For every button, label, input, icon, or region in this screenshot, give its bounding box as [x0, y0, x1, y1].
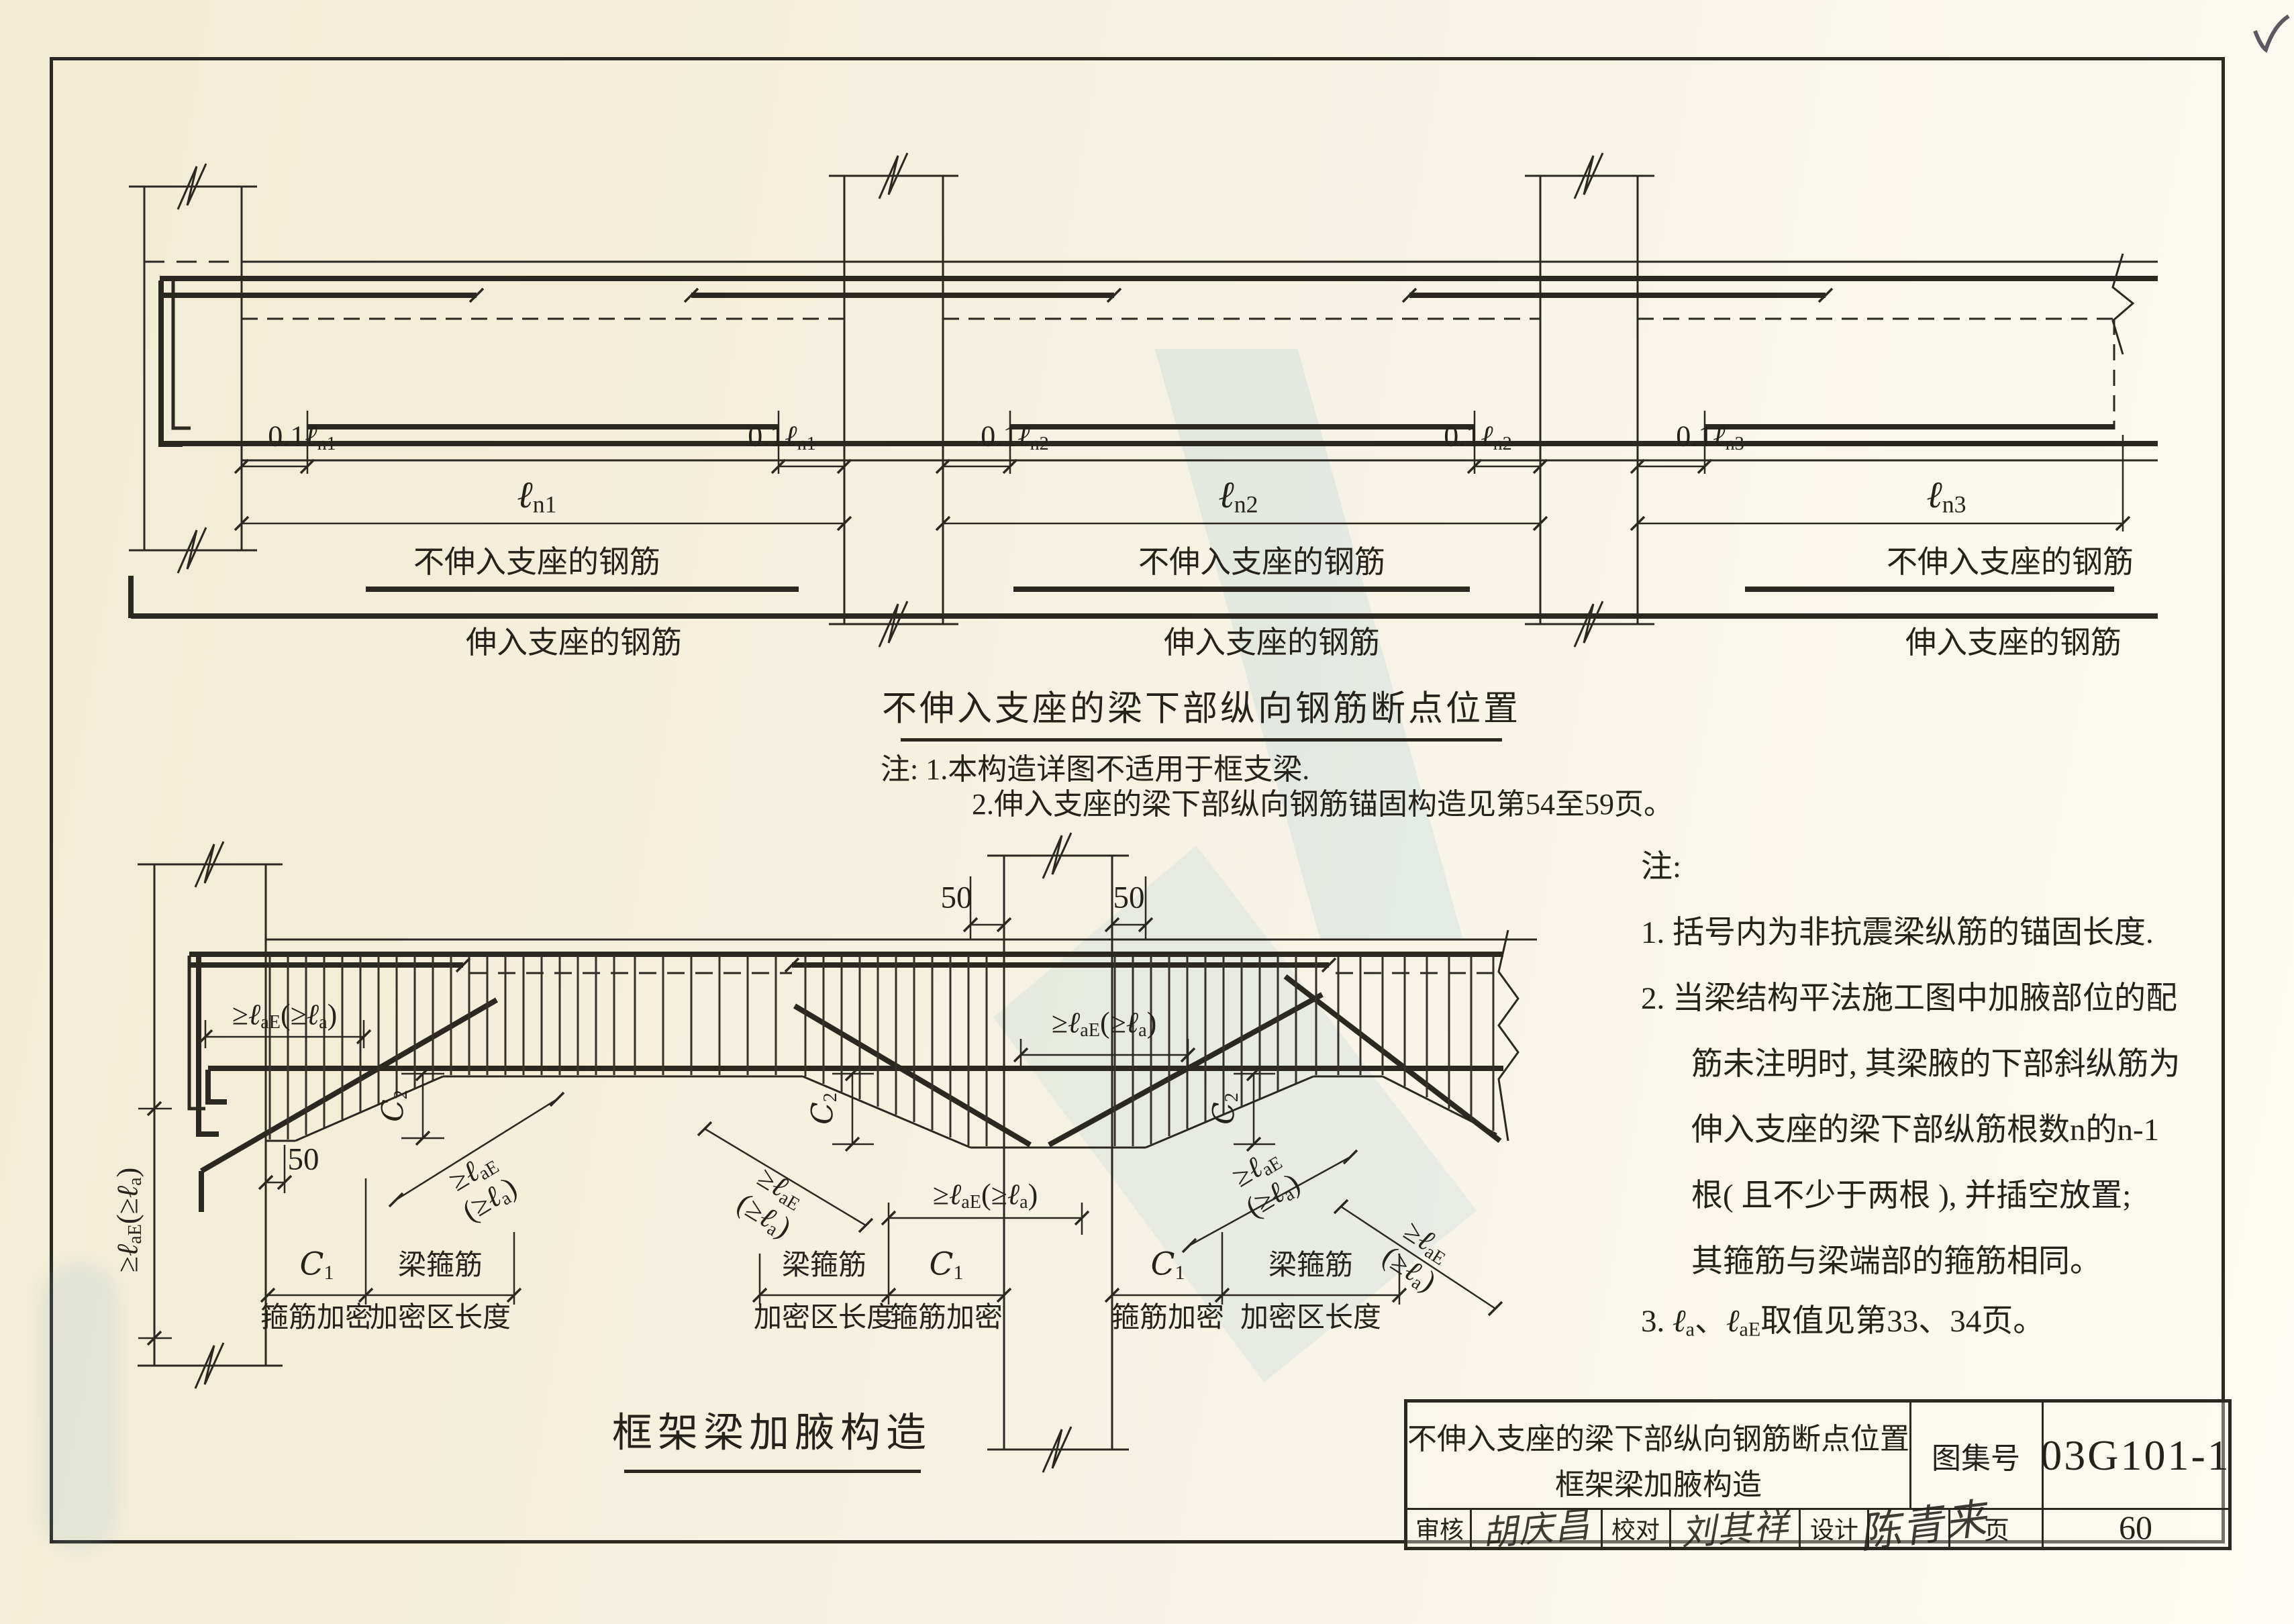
title-block-divider	[1669, 1508, 1671, 1547]
label-stirrup-densify: 箍筋加密	[1111, 1303, 1224, 1333]
reviewer-label: 审核	[1415, 1511, 1464, 1545]
label-rebar-into-support: 伸入支座的钢筋	[466, 627, 682, 659]
side-note-2d: 根( 且不少于两根 ), 并插空放置;	[1691, 1180, 2131, 1213]
side-note-2: 2. 当梁结构平法施工图中加腋部位的配	[1641, 982, 2177, 1015]
dim-01ln2-left: 0.1ℓn2	[981, 421, 1048, 454]
dim-C2-mid-left: C2	[807, 1093, 840, 1125]
side-note-3: 3. ℓa、ℓaE取值见第33、34页。	[1641, 1305, 2044, 1340]
pen-check-mark	[2255, 16, 2289, 50]
dim-laE-mid-lower: ≥ℓaE(≥ℓa)	[933, 1179, 1038, 1212]
label-rebar-into-support: 伸入支座的钢筋	[1905, 627, 2122, 659]
dim-C2-mid-right: C2	[1209, 1093, 1242, 1125]
dim-01ln1-left: 0.1ℓn1	[268, 421, 336, 454]
dim-ln3: ℓn3	[1926, 476, 1966, 517]
title-underline	[901, 738, 1502, 742]
label-stirrup-densify: 箍筋加密	[260, 1303, 373, 1333]
dim-ln1: ℓn1	[517, 476, 556, 517]
label-densified-zone: 加密区长度	[370, 1303, 511, 1333]
label-beam-stirrups: 梁箍筋	[1268, 1251, 1353, 1280]
label-rebar-into-support: 伸入支座的钢筋	[1164, 627, 1380, 659]
top-note-1: 注: 1.本构造详图不适用于框支梁.	[881, 754, 1309, 785]
dim-50-mid-right: 50	[1113, 881, 1145, 914]
dim-01ln1-right: 0.1ℓn1	[748, 421, 815, 454]
side-note-1: 1. 括号内为非抗震梁纵筋的锚固长度.	[1641, 917, 2154, 950]
title-block-line1: 不伸入支座的梁下部纵向钢筋断点位置	[1407, 1415, 1909, 1458]
bottom-beam-lines	[189, 940, 1537, 1212]
side-notes-prefix: 注:	[1641, 851, 1681, 884]
dim-laE-top-left: ≥ℓaE(≥ℓa)	[232, 999, 337, 1032]
label-rebar-not-into-support: 不伸入支座的钢筋	[1887, 546, 2134, 578]
reviewer-signature: 胡庆昌	[1480, 1496, 1593, 1556]
atlas-number-value: 03G101-1	[2040, 1431, 2231, 1480]
top-beam-lines	[144, 262, 2158, 460]
title-block: 不伸入支座的梁下部纵向钢筋断点位置 框架梁加腋构造 图集号 03G101-1 审…	[1404, 1399, 2232, 1550]
label-densified-zone: 加密区长度	[1240, 1303, 1381, 1333]
label-stirrup-densify: 箍筋加密	[890, 1303, 1003, 1333]
label-densified-zone: 加密区长度	[754, 1303, 895, 1333]
dim-laE-mid-upper: ≥ℓaE(≥ℓa)	[1052, 1007, 1156, 1040]
dim-50-left: 50	[288, 1143, 319, 1176]
top-diagram-title: 不伸入支座的梁下部纵向钢筋断点位置	[882, 692, 1521, 729]
bottom-columns	[138, 833, 1518, 1472]
checker-label: 校对	[1611, 1511, 1660, 1545]
label-rebar-not-into-support: 不伸入支座的钢筋	[413, 546, 660, 578]
top-note-2: 2.伸入支座的梁下部纵向钢筋锚固构造见第54至59页。	[972, 789, 1673, 820]
dim-C1-mid-left: C1	[929, 1248, 963, 1284]
bottom-diagram-title: 框架梁加腋构造	[612, 1413, 932, 1455]
dim-01ln3: 0.1ℓn3	[1676, 421, 1744, 454]
stirrup-lines	[270, 956, 1493, 1146]
dim-C1-mid-right: C1	[1150, 1248, 1185, 1284]
side-note-2c: 伸入支座的梁下部纵筋根数n的n-1	[1691, 1114, 2159, 1147]
side-note-2e: 其箍筋与梁端部的箍筋相同。	[1691, 1246, 2101, 1278]
top-indicator-bars	[131, 576, 2158, 618]
title-block-divider	[1470, 1508, 1472, 1547]
checker-signature: 刘其祥	[1679, 1497, 1791, 1555]
dim-C1-left: C1	[299, 1248, 334, 1284]
dim-laE-vertical: ≥ℓaE(≥ℓa)	[112, 1168, 145, 1272]
atlas-number-label: 图集号	[1932, 1434, 2020, 1477]
side-note-2b: 筋未注明时, 其梁腋的下部斜纵筋为	[1691, 1048, 2181, 1081]
page-number: 60	[2119, 1508, 2152, 1547]
designer-signature: 陈青来	[1855, 1484, 1991, 1560]
designer-label: 设计	[1810, 1511, 1858, 1545]
label-beam-stirrups: 梁箍筋	[782, 1251, 866, 1280]
title-block-divider	[1799, 1508, 1801, 1547]
dim-ln2: ℓn2	[1218, 476, 1258, 517]
bottom-title-underline	[624, 1470, 921, 1473]
title-block-divider	[1601, 1508, 1603, 1547]
label-rebar-not-into-support: 不伸入支座的钢筋	[1138, 546, 1385, 578]
dim-50-mid-left: 50	[941, 881, 973, 914]
dim-C2-left: C2	[378, 1090, 411, 1122]
title-block-divider	[1909, 1403, 1911, 1508]
drawing-sheet: 0.1ℓn1 0.1ℓn1 0.1ℓn2 0.1ℓn2 0.1ℓn3 ℓn1 ℓ…	[0, 0, 2294, 1624]
dim-01ln2-right: 0.1ℓn2	[1444, 421, 1511, 454]
label-beam-stirrups: 梁箍筋	[398, 1251, 483, 1280]
